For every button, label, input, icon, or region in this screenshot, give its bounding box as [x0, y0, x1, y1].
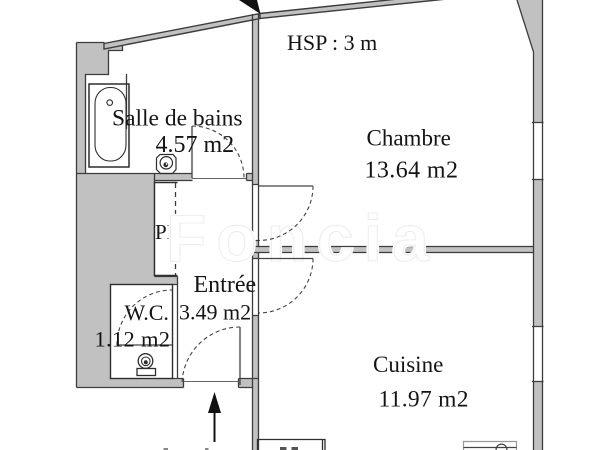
svg-text:W.C.: W.C.: [125, 300, 169, 325]
svg-text:Foncia: Foncia: [166, 201, 439, 275]
svg-text:13.64 m2: 13.64 m2: [365, 158, 459, 184]
svg-text:HSP : 3 m: HSP : 3 m: [287, 30, 377, 55]
svg-text:4.57 m2: 4.57 m2: [156, 132, 235, 158]
svg-text:3.49 m2: 3.49 m2: [179, 300, 251, 325]
svg-text:1.12 m2: 1.12 m2: [95, 327, 171, 352]
svg-text:11.97 m2: 11.97 m2: [379, 387, 469, 413]
svg-text:Entrée: Entrée: [194, 272, 257, 298]
svg-text:Chambre: Chambre: [367, 126, 451, 151]
svg-text:Cuisine: Cuisine: [373, 352, 443, 377]
svg-text:Salle de bains: Salle de bains: [112, 106, 243, 132]
